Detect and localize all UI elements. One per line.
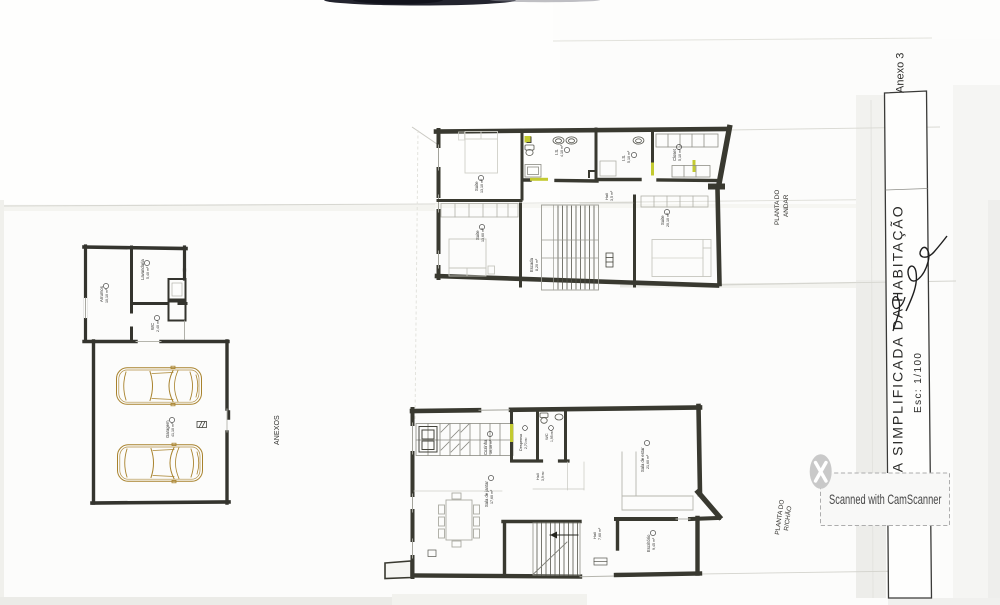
svg-text:Sala de estar: Sala de estar: [640, 447, 645, 472]
svg-text:21,60 m²: 21,60 m²: [646, 454, 650, 469]
svg-text:I.S.: I.S.: [621, 155, 626, 161]
svg-text:Escritório: Escritório: [646, 534, 651, 552]
svg-text:Scanned with CamScanner: Scanned with CamScanner: [829, 492, 942, 507]
svg-text:Suite: Suite: [474, 181, 479, 191]
svg-text:Closet: Closet: [672, 148, 677, 161]
svg-text:Arrumos: Arrumos: [99, 286, 104, 302]
svg-text:Anexo 3: Anexo 3: [895, 53, 907, 93]
svg-text:WC: WC: [544, 433, 549, 440]
svg-text:Hall: Hall: [536, 473, 540, 480]
svg-text:16,10 m²: 16,10 m²: [489, 439, 493, 454]
svg-text:Garagem: Garagem: [165, 420, 170, 438]
svg-text:5,10 m²: 5,10 m²: [678, 148, 682, 161]
svg-text:9,45 m²: 9,45 m²: [652, 537, 656, 550]
svg-text:Suite: Suite: [475, 230, 480, 240]
svg-text:Sala de jantar: Sala de jantar: [484, 481, 489, 507]
svg-text:Esc: 1/100: Esc: 1/100: [913, 353, 924, 413]
svg-text:Cozinha: Cozinha: [483, 439, 488, 455]
svg-text:41,10 m²: 41,10 m²: [171, 422, 175, 437]
svg-text:2,40 m²: 2,40 m²: [156, 319, 160, 332]
svg-text:Suite: Suite: [660, 215, 665, 225]
svg-text:2,70 m²: 2,70 m²: [524, 437, 528, 449]
svg-text:1,95 m²: 1,95 m²: [550, 430, 554, 442]
svg-text:Hall: Hall: [592, 532, 597, 539]
svg-text:ANEXOS: ANEXOS: [274, 415, 281, 445]
svg-text:WC: WC: [150, 323, 155, 330]
svg-text:5,40 m²: 5,40 m²: [146, 266, 150, 279]
svg-text:Escada: Escada: [529, 257, 534, 272]
svg-text:3,5 m²: 3,5 m²: [610, 190, 614, 201]
svg-text:ANDAR: ANDAR: [783, 194, 790, 217]
svg-text:Despensa: Despensa: [519, 433, 523, 451]
svg-text:3,9 m²: 3,9 m²: [541, 471, 545, 481]
svg-text:Hall: Hall: [604, 193, 609, 200]
svg-text:5,10 m²: 5,10 m²: [627, 150, 631, 163]
svg-text:I.S.: I.S.: [554, 149, 559, 155]
svg-text:8,20 m²: 8,20 m²: [535, 258, 539, 271]
svg-text:17,60 m²: 17,60 m²: [490, 489, 494, 504]
svg-text:10,10 m²: 10,10 m²: [105, 288, 109, 303]
svg-text:PLANTA DO: PLANTA DO: [774, 190, 781, 225]
svg-text:Lavandaria: Lavandaria: [140, 259, 145, 280]
svg-text:4,10 m²: 4,10 m²: [560, 144, 564, 157]
svg-text:7,60 m²: 7,60 m²: [598, 527, 602, 540]
